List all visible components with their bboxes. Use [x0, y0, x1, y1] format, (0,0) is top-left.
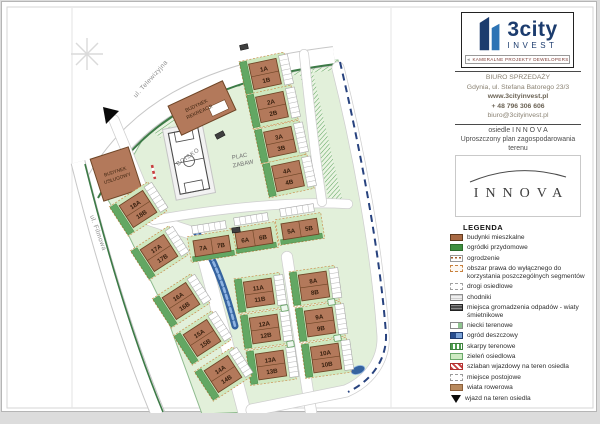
legend-title: LEGENDA	[463, 223, 503, 232]
garden-swatch-icon	[450, 244, 463, 251]
brand-name: 3city	[507, 19, 557, 40]
legend-item-label: drogi osiedlowe	[467, 283, 587, 291]
legend-item: ogródki przydomowe	[450, 244, 596, 252]
legend-item: drogi osiedlowe	[450, 283, 596, 291]
building-label-a: 8A	[309, 277, 318, 285]
legend-item: zieleń osiedlowa	[450, 353, 596, 361]
road-swatch-icon	[450, 283, 463, 290]
legend-item-label: wjazd na teren osiedla	[465, 395, 585, 403]
legend-item-label: chodniki	[467, 294, 587, 302]
legend-item-label: szlaban wjazdowy na teren osiedla	[467, 363, 587, 371]
building-13: 13A13B	[246, 344, 299, 385]
legend-item: ogrodzenie	[450, 255, 596, 263]
divider	[455, 71, 581, 72]
document: BUDYNEK REKREACJI BUDYNEK USŁUGOWY 1A1B2…	[0, 0, 600, 424]
building-11: 11A11B	[234, 272, 287, 313]
brand-subname: INVEST	[507, 41, 557, 50]
legend-item: szlaban wjazdowy na teren osiedla	[450, 363, 596, 371]
legend-item-label: miejsca gromadzenia odpadów - wiaty śmie…	[467, 304, 587, 320]
compass-star-icon	[71, 38, 103, 70]
legend-item-label: ogrodzenie	[467, 255, 587, 263]
legend: budynki mieszkalneogródki przydomoweogro…	[450, 234, 596, 405]
building-label-b: 9B	[317, 325, 326, 333]
legend-item-label: wiata rowerowa	[467, 384, 587, 392]
legend-item: budynki mieszkalne	[450, 234, 596, 242]
rain-swatch-icon	[450, 332, 463, 339]
info-panel: 3city INVEST KAMERALNE PROJEKTY DEWELOPE…	[445, 2, 597, 411]
legend-item-label: ogród deszczowy	[467, 332, 587, 340]
project-subtitle-2: terenu	[445, 146, 591, 153]
slope-swatch-icon	[450, 343, 463, 350]
legend-item: chodniki	[450, 294, 596, 302]
bike-swatch-icon	[450, 384, 463, 391]
developer-logo-icon	[477, 16, 503, 52]
office-website: www.3cityinvest.pl	[445, 94, 591, 101]
legend-item-label: miejsce postojowe	[467, 374, 587, 382]
parking-swatch-icon	[450, 374, 463, 381]
legend-item: wiata rowerowa	[450, 384, 596, 392]
basin-swatch-icon	[450, 322, 463, 329]
legend-item: skarpy terenowe	[450, 343, 596, 351]
legend-item-label: niecki terenowe	[467, 322, 587, 330]
developer-logo-box: 3city INVEST KAMERALNE PROJEKTY DEWELOPE…	[461, 12, 574, 68]
barrier-swatch-icon	[450, 363, 463, 370]
legend-item: obszar prawa do wyłącznego do korzystani…	[450, 265, 596, 281]
office-email: biuro@3cityinvest.pl	[445, 113, 591, 120]
legend-item-label: ogródki przydomowe	[467, 244, 587, 252]
fence-swatch-icon	[450, 255, 463, 262]
project-subtitle: Uproszczony plan zagospodarowania	[445, 137, 591, 144]
green-swatch-icon	[450, 353, 463, 360]
legend-item: miejsca gromadzenia odpadów - wiaty śmie…	[450, 304, 596, 320]
project-logo-box: INNOVA	[455, 155, 581, 217]
building-swatch-icon	[450, 234, 463, 241]
legend-item: ogród deszczowy	[450, 332, 596, 340]
building-label-b: 8B	[311, 289, 320, 297]
legend-item: wjazd na teren osiedla	[450, 395, 596, 403]
waste-swatch-icon	[450, 304, 463, 311]
building-10: 10A10B	[301, 337, 354, 378]
office-phone: + 48 796 306 606	[445, 104, 591, 111]
project-logo-word: INNOVA	[456, 186, 580, 202]
project-name: osiedle I N N O V A	[445, 128, 591, 135]
office-title: BIURO SPRZEDAŻY	[445, 75, 591, 82]
exclusive-swatch-icon	[450, 265, 463, 272]
legend-item: miejsce postojowe	[450, 374, 596, 382]
sidewalk-swatch-icon	[450, 294, 463, 301]
brand-tagline: KAMERALNE PROJEKTY DEWELOPERSKIE	[465, 55, 570, 64]
street-top-label: ul. Telewizyjna	[132, 59, 169, 99]
legend-item-label: budynki mieszkalne	[467, 234, 587, 242]
office-address: Gdynia, ul. Stefana Batorego 23/3	[445, 85, 591, 92]
legend-item-label: obszar prawa do wyłącznego do korzystani…	[467, 265, 587, 281]
legend-item: niecki terenowe	[450, 322, 596, 330]
plan-sheet: BUDYNEK REKREACJI BUDYNEK USŁUGOWY 1A1B2…	[1, 1, 597, 412]
legend-item-label: skarpy terenowe	[467, 343, 587, 351]
divider	[455, 124, 581, 125]
building-12: 12A12B	[240, 308, 293, 349]
building-label-a: 9A	[315, 313, 324, 321]
legend-item-label: zieleń osiedlowa	[467, 353, 587, 361]
entrance-swatch-icon	[451, 395, 461, 403]
